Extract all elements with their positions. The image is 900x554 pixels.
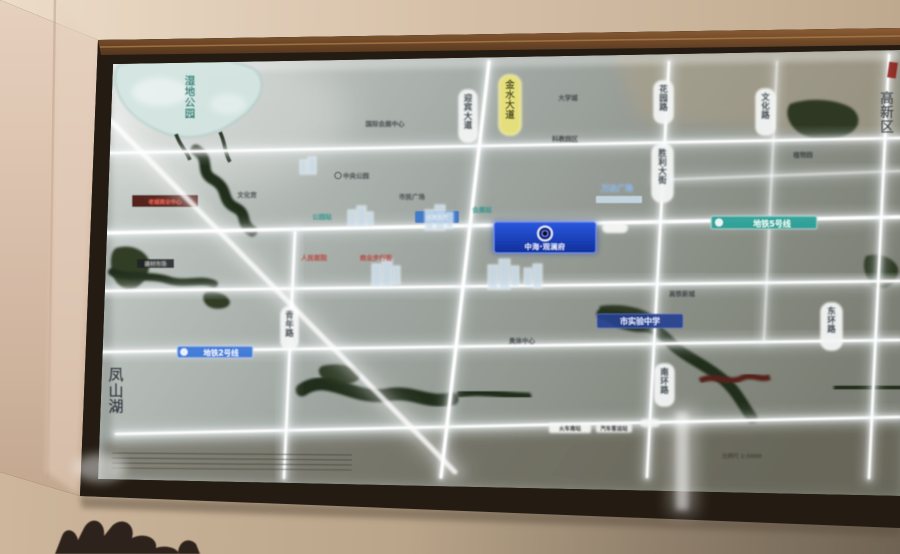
poi-label: 中央公园 <box>343 171 370 180</box>
metro-line2-bar: 地铁2号线 <box>177 346 253 358</box>
dark-bar-label: 建材市场 <box>144 260 167 268</box>
map-panel: 湿地公园 <box>50 40 900 510</box>
metro-icon <box>180 348 188 356</box>
lake-name-vertical-label: 湿地公园 <box>185 74 196 120</box>
road-plate-label: 南环路 <box>660 367 669 396</box>
bottom-road-plates: 火车南站 汽车客运站 <box>549 423 632 433</box>
road-plate-label: 东环路 <box>827 306 836 335</box>
poi-label: 科教园区 <box>552 134 579 143</box>
metro-line2-label: 地铁2号线 <box>203 348 239 358</box>
station-label: 会展站 <box>472 205 492 214</box>
station-label: 公园站 <box>312 212 332 221</box>
metro-icon <box>715 219 723 227</box>
building-icon <box>300 157 316 174</box>
small-plate-label: 火车南站 <box>559 425 582 433</box>
photo-of-map-lightbox: 湿地公园 <box>0 0 900 554</box>
district-vertical-label: 凤山湖 <box>108 366 123 416</box>
poi-label: 国际会展中心 <box>366 119 406 128</box>
poi-label: 大学城 <box>558 93 578 102</box>
poi-label: 奥体中心 <box>508 336 536 345</box>
station-oval <box>602 223 628 233</box>
metro-line5-label: 地铁5号线 <box>753 219 791 229</box>
project-sign-label: 中海·观澜府 <box>525 242 566 251</box>
glare-vertical-core <box>676 412 688 510</box>
mall-pale-bar <box>596 196 642 203</box>
map-photo-canvas: 湿地公园 <box>0 0 900 554</box>
lake-highlight <box>132 78 188 106</box>
station-oval-2 <box>640 419 660 427</box>
district-edge-vertical-label: 高新区 <box>880 90 894 135</box>
building-icon <box>524 264 542 288</box>
small-plate-label: 汽车客运站 <box>600 425 628 433</box>
poi-label: 高铁新城 <box>669 289 696 298</box>
road-plate-label: 文化路 <box>761 92 770 121</box>
road-plate-label: 胜利大街 <box>657 148 667 186</box>
metro-line5-bar: 地铁5号线 <box>711 216 817 229</box>
project-sign: 中海·观澜府 <box>492 220 598 254</box>
road-plate-label: 花园路 <box>659 84 668 113</box>
poi-label: 市民广场 <box>399 192 426 201</box>
yellow-road-plate-label: 金水大道 <box>504 79 515 121</box>
glare-corner-spot <box>74 454 126 482</box>
mall-glow-label: 万达广场 <box>600 183 633 193</box>
poi-label-red: 人民医院 <box>301 253 328 262</box>
poi-label: 植物园 <box>792 150 813 159</box>
river-bottom-thin <box>460 393 528 396</box>
school-board-label: 市实验中学 <box>620 316 660 326</box>
school-board: 市实验中学 <box>597 314 683 328</box>
road-plate-label: 迎宾大道 <box>464 93 473 131</box>
legend-note: 比例尺 1:5000 <box>722 452 762 460</box>
project-logo-center <box>542 231 548 237</box>
lake-highlight-2 <box>210 94 246 114</box>
poi-label: 文化宫 <box>236 190 257 199</box>
poi-label-red: 商业步行街 <box>360 253 393 262</box>
